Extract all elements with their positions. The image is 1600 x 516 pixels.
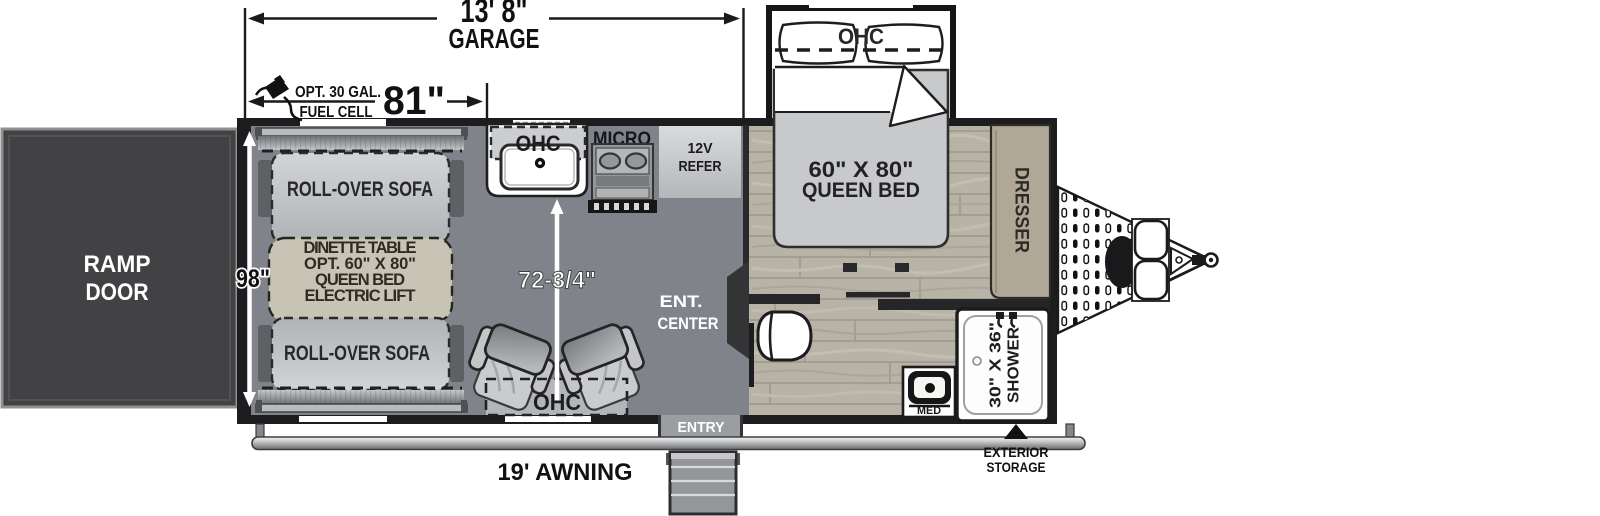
svg-text:30" X 36": 30" X 36" [988,322,1005,408]
svg-text:OPT. 30 GAL.: OPT. 30 GAL. [295,84,381,101]
svg-text:72-3/4": 72-3/4" [518,267,596,294]
svg-text:19' AWNING: 19' AWNING [498,459,633,486]
svg-text:GARAGE: GARAGE [449,23,540,54]
svg-text:12V: 12V [688,141,713,157]
svg-text:81": 81" [383,79,445,123]
svg-text:REFER: REFER [679,159,722,175]
svg-text:ROLL-OVER SOFA: ROLL-OVER SOFA [287,178,433,201]
svg-text:STORAGE: STORAGE [987,460,1046,475]
svg-text:DOOR: DOOR [86,279,149,306]
svg-text:ENT.: ENT. [660,292,703,311]
svg-text:OHC: OHC [838,24,884,49]
svg-text:ELECTRIC LIFT: ELECTRIC LIFT [305,287,416,305]
svg-text:CENTER: CENTER [658,314,719,333]
svg-text:ENTRY: ENTRY [678,420,725,436]
svg-text:OHC: OHC [516,131,561,156]
svg-text:DRESSER: DRESSER [1011,167,1032,253]
svg-text:FUEL CELL: FUEL CELL [300,104,373,121]
svg-text:OHC: OHC [533,389,581,415]
svg-text:MED: MED [917,405,941,417]
svg-text:ROLL-OVER SOFA: ROLL-OVER SOFA [284,342,430,365]
svg-text:EXTERIOR: EXTERIOR [984,445,1049,460]
svg-text:QUEEN BED: QUEEN BED [802,179,920,202]
svg-text:SHOWER: SHOWER [1006,327,1023,403]
svg-text:RAMP: RAMP [84,251,151,278]
svg-text:98": 98" [236,265,270,293]
